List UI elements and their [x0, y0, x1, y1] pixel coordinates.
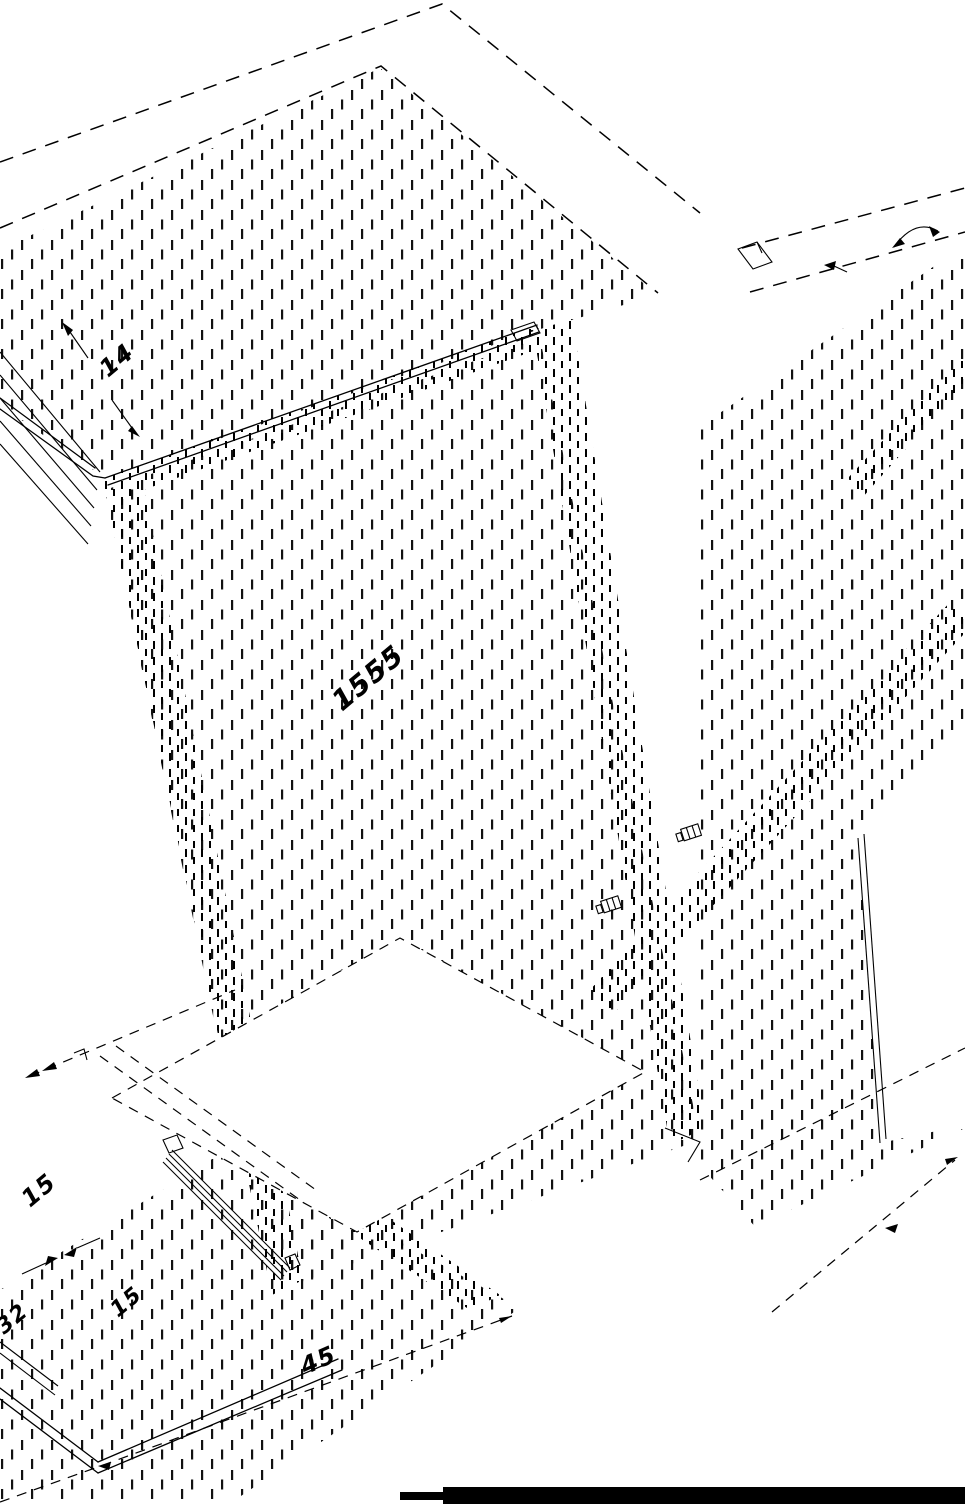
small-arrow-tail — [834, 266, 847, 272]
dim-arrowhead — [42, 1062, 57, 1071]
footer-black-bar-small — [400, 1492, 444, 1500]
rotation-arrowhead — [892, 238, 905, 248]
rotation-arrowhead — [929, 226, 940, 237]
isometric-assembly-drawing: 14 1555 15 32 15 45 — [0, 0, 965, 1504]
dim-arrowhead — [25, 1069, 40, 1078]
footer-black-bar — [443, 1487, 965, 1504]
left-edge-stack-line-5 — [0, 444, 88, 544]
assembly-drawing-page: 14 1555 15 32 15 45 — [0, 0, 965, 1504]
small-arrowhead — [824, 261, 836, 270]
phantom-panel-end-block — [738, 242, 772, 269]
rotation-indicator — [824, 226, 940, 272]
top-right-phantom-panel-top — [742, 188, 965, 248]
dimension-label-15-upper: 15 — [16, 1168, 62, 1213]
footer-bar — [400, 1487, 965, 1504]
